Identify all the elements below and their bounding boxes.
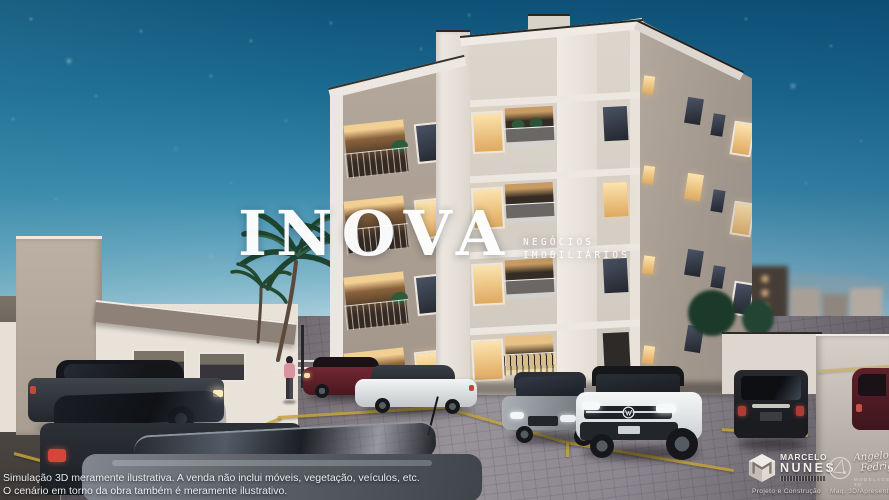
- apartment-window: [684, 249, 704, 277]
- architect-caption: Projeto e Construção: [752, 488, 821, 495]
- apartment-window: [710, 113, 725, 137]
- disclaimer-text: Simulação 3D meramente ilustrativa. A ve…: [3, 472, 420, 498]
- watermark: INOVA NEGÓCIOS IMOBILIÁRIOS: [238, 202, 630, 266]
- apartment-window: [684, 97, 704, 125]
- credit-logos: MARCELO NUNES Projeto e Construção Angel…: [742, 449, 889, 499]
- taillight: [796, 406, 804, 416]
- taillight: [48, 449, 66, 462]
- apartment-window: [729, 121, 755, 158]
- brand-tagline: NEGÓCIOS IMOBILIÁRIOS: [523, 236, 630, 262]
- tree: [688, 290, 736, 336]
- brand-wordmark: INOVA: [238, 202, 513, 266]
- visualization-logo: Angelo Fedrigo MODELAGEM 3D Maq. 3D/Apre…: [828, 449, 889, 499]
- disclaimer-line1: Simulação 3D meramente ilustrativa. A ve…: [3, 472, 420, 485]
- visualization-caption: Maq. 3D/Apresentação: [830, 488, 889, 495]
- tree: [742, 300, 774, 336]
- car-white-sedan: [355, 365, 477, 413]
- apartment-window: [603, 106, 629, 141]
- headlight: [582, 402, 600, 410]
- apartment-floor: [465, 98, 640, 167]
- apartment-window: [729, 201, 755, 238]
- taillight: [738, 406, 746, 416]
- stair-window: [642, 75, 655, 94]
- visualization-name: Angelo Fedrigo: [853, 449, 889, 474]
- balcony-railing: [344, 147, 410, 179]
- glass-railing: [504, 126, 557, 148]
- stars: [0, 0, 2, 2]
- glass-railing: [504, 278, 557, 300]
- architect-logo-subtitle-bar: [780, 476, 826, 481]
- vw-logo-icon: [622, 406, 635, 419]
- property-3d-render: INOVA NEGÓCIOS IMOBILIÁRIOS Simulação 3D…: [0, 0, 889, 500]
- taillight: [30, 386, 36, 394]
- rear-window: [741, 376, 801, 400]
- architect-logo: MARCELO NUNES Projeto e Construção: [742, 449, 830, 499]
- apartment-window: [710, 265, 725, 289]
- mn-monogram-cube-icon: [748, 453, 776, 483]
- license-plate: [618, 426, 640, 434]
- car-white-vw-tcross: [576, 366, 704, 460]
- headlight: [656, 404, 676, 413]
- apartment-window: [471, 111, 505, 155]
- apartment-window: [710, 189, 725, 213]
- car-dark-suv-rear: [734, 362, 808, 448]
- balcony-railing: [344, 299, 410, 331]
- stair-window: [642, 255, 655, 274]
- license-plate: [760, 412, 782, 421]
- apartment-window: [684, 173, 704, 201]
- stair-window: [642, 345, 655, 364]
- car-maroon-edge: [852, 364, 889, 438]
- stair-window: [642, 165, 655, 184]
- disclaimer-line2: O cenário em torno da obra também é mera…: [3, 485, 420, 498]
- af-lens-circle-icon: [828, 456, 852, 480]
- visualization-subtitle: MODELAGEM 3D: [854, 477, 889, 487]
